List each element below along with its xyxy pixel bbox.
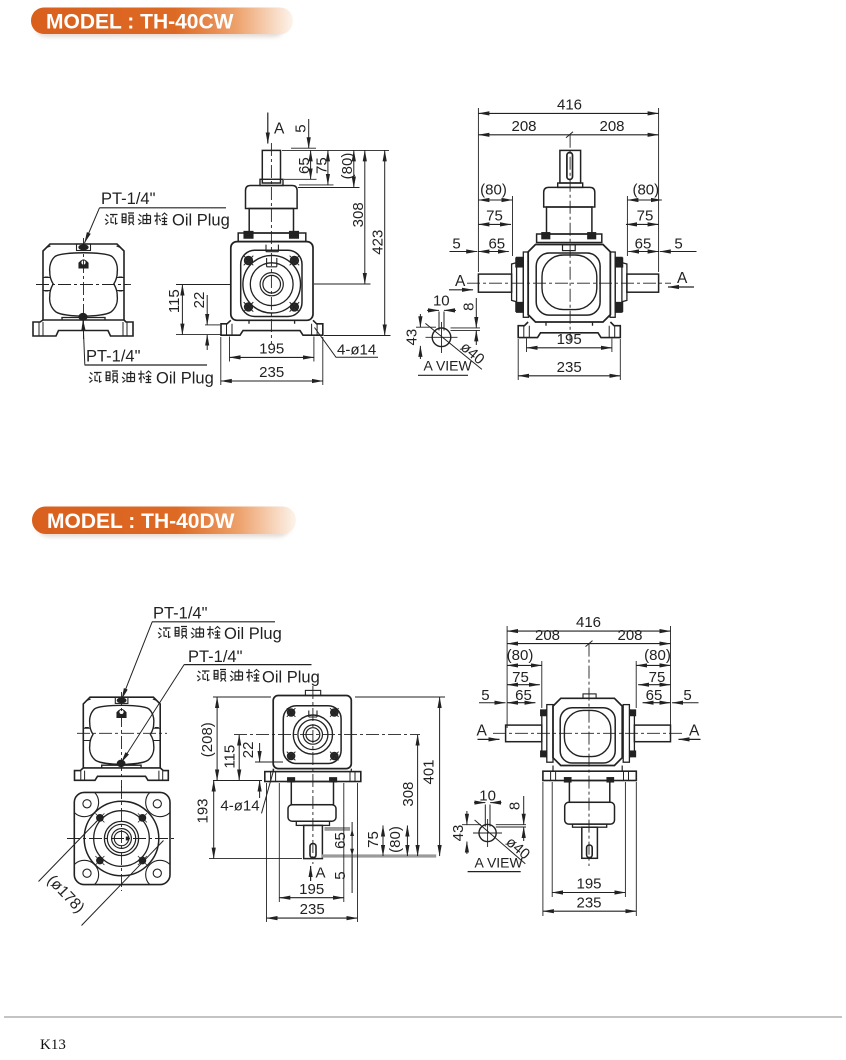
- svg-text:MODEL : TH-40CW: MODEL : TH-40CW: [46, 11, 234, 34]
- svg-text:65: 65: [515, 687, 532, 704]
- svg-text:A VIEW: A VIEW: [424, 358, 473, 374]
- svg-text:308: 308: [400, 782, 417, 807]
- svg-text:22: 22: [240, 742, 257, 759]
- svg-text:43: 43: [404, 329, 421, 346]
- svg-text:235: 235: [557, 359, 582, 376]
- svg-text:195: 195: [299, 881, 324, 898]
- svg-text:10: 10: [433, 293, 450, 310]
- svg-text:(208): (208): [199, 722, 216, 757]
- svg-text:5: 5: [683, 687, 691, 704]
- svg-text:43: 43: [450, 825, 467, 842]
- svg-text:75: 75: [313, 157, 330, 174]
- svg-text:8: 8: [461, 303, 478, 311]
- svg-text:75: 75: [649, 669, 666, 686]
- svg-text:5: 5: [452, 236, 460, 253]
- svg-text:(80): (80): [339, 153, 356, 180]
- svg-text:PT-1/4": PT-1/4": [153, 605, 208, 623]
- svg-text:(80): (80): [507, 647, 534, 664]
- svg-text:(80): (80): [480, 182, 507, 199]
- svg-text:75: 75: [486, 208, 503, 225]
- svg-text:Oil Plug: Oil Plug: [156, 370, 214, 388]
- svg-text:115: 115: [166, 289, 183, 313]
- svg-text:PT-1/4": PT-1/4": [188, 648, 243, 666]
- svg-text:75: 75: [365, 831, 382, 848]
- svg-text:65: 65: [296, 157, 313, 174]
- svg-text:A: A: [477, 723, 488, 740]
- svg-text:416: 416: [557, 97, 582, 114]
- svg-text:208: 208: [599, 118, 624, 135]
- svg-text:10: 10: [479, 788, 496, 805]
- svg-text:5: 5: [674, 236, 682, 253]
- svg-text:65: 65: [488, 236, 505, 253]
- svg-text:235: 235: [576, 894, 601, 911]
- svg-text:A: A: [689, 723, 700, 740]
- svg-text:5: 5: [293, 124, 310, 132]
- svg-text:A: A: [274, 121, 285, 138]
- svg-text:308: 308: [350, 202, 367, 227]
- svg-text:A: A: [455, 273, 466, 290]
- svg-text:65: 65: [332, 832, 349, 849]
- svg-text:235: 235: [259, 364, 284, 381]
- svg-text:115: 115: [222, 745, 239, 769]
- svg-text:193: 193: [194, 798, 211, 823]
- svg-text:208: 208: [511, 118, 536, 135]
- svg-text:195: 195: [576, 876, 601, 893]
- svg-text:75: 75: [637, 208, 654, 225]
- svg-text:416: 416: [576, 614, 601, 631]
- svg-text:75: 75: [512, 669, 529, 686]
- svg-text:(80): (80): [387, 826, 404, 853]
- svg-text:8: 8: [506, 802, 523, 810]
- svg-text:Oil Plug: Oil Plug: [224, 625, 282, 643]
- svg-text:A: A: [316, 865, 326, 882]
- svg-text:195: 195: [259, 341, 284, 358]
- svg-text:A: A: [677, 270, 688, 287]
- svg-text:MODEL : TH-40DW: MODEL : TH-40DW: [47, 510, 235, 533]
- svg-text:208: 208: [617, 627, 642, 644]
- svg-text:Oil Plug: Oil Plug: [172, 212, 230, 230]
- svg-text:195: 195: [557, 331, 582, 348]
- svg-text:(80): (80): [632, 182, 659, 199]
- svg-text:(80): (80): [644, 647, 671, 664]
- svg-text:208: 208: [535, 627, 560, 644]
- svg-text:5: 5: [332, 871, 349, 879]
- svg-text:PT-1/4": PT-1/4": [101, 190, 156, 208]
- svg-text:423: 423: [370, 230, 387, 255]
- svg-text:401: 401: [420, 759, 437, 784]
- svg-text:235: 235: [300, 901, 325, 918]
- svg-text:22: 22: [191, 292, 208, 309]
- svg-text:4-ø14: 4-ø14: [220, 798, 259, 815]
- svg-text:PT-1/4": PT-1/4": [86, 348, 141, 366]
- svg-text:A VIEW: A VIEW: [475, 855, 524, 871]
- svg-text:K13: K13: [40, 1037, 66, 1053]
- svg-text:65: 65: [646, 687, 663, 704]
- svg-text:Oil Plug: Oil Plug: [262, 668, 320, 686]
- svg-text:4-ø14: 4-ø14: [337, 342, 376, 359]
- svg-text:65: 65: [635, 236, 652, 253]
- svg-text:5: 5: [481, 687, 489, 704]
